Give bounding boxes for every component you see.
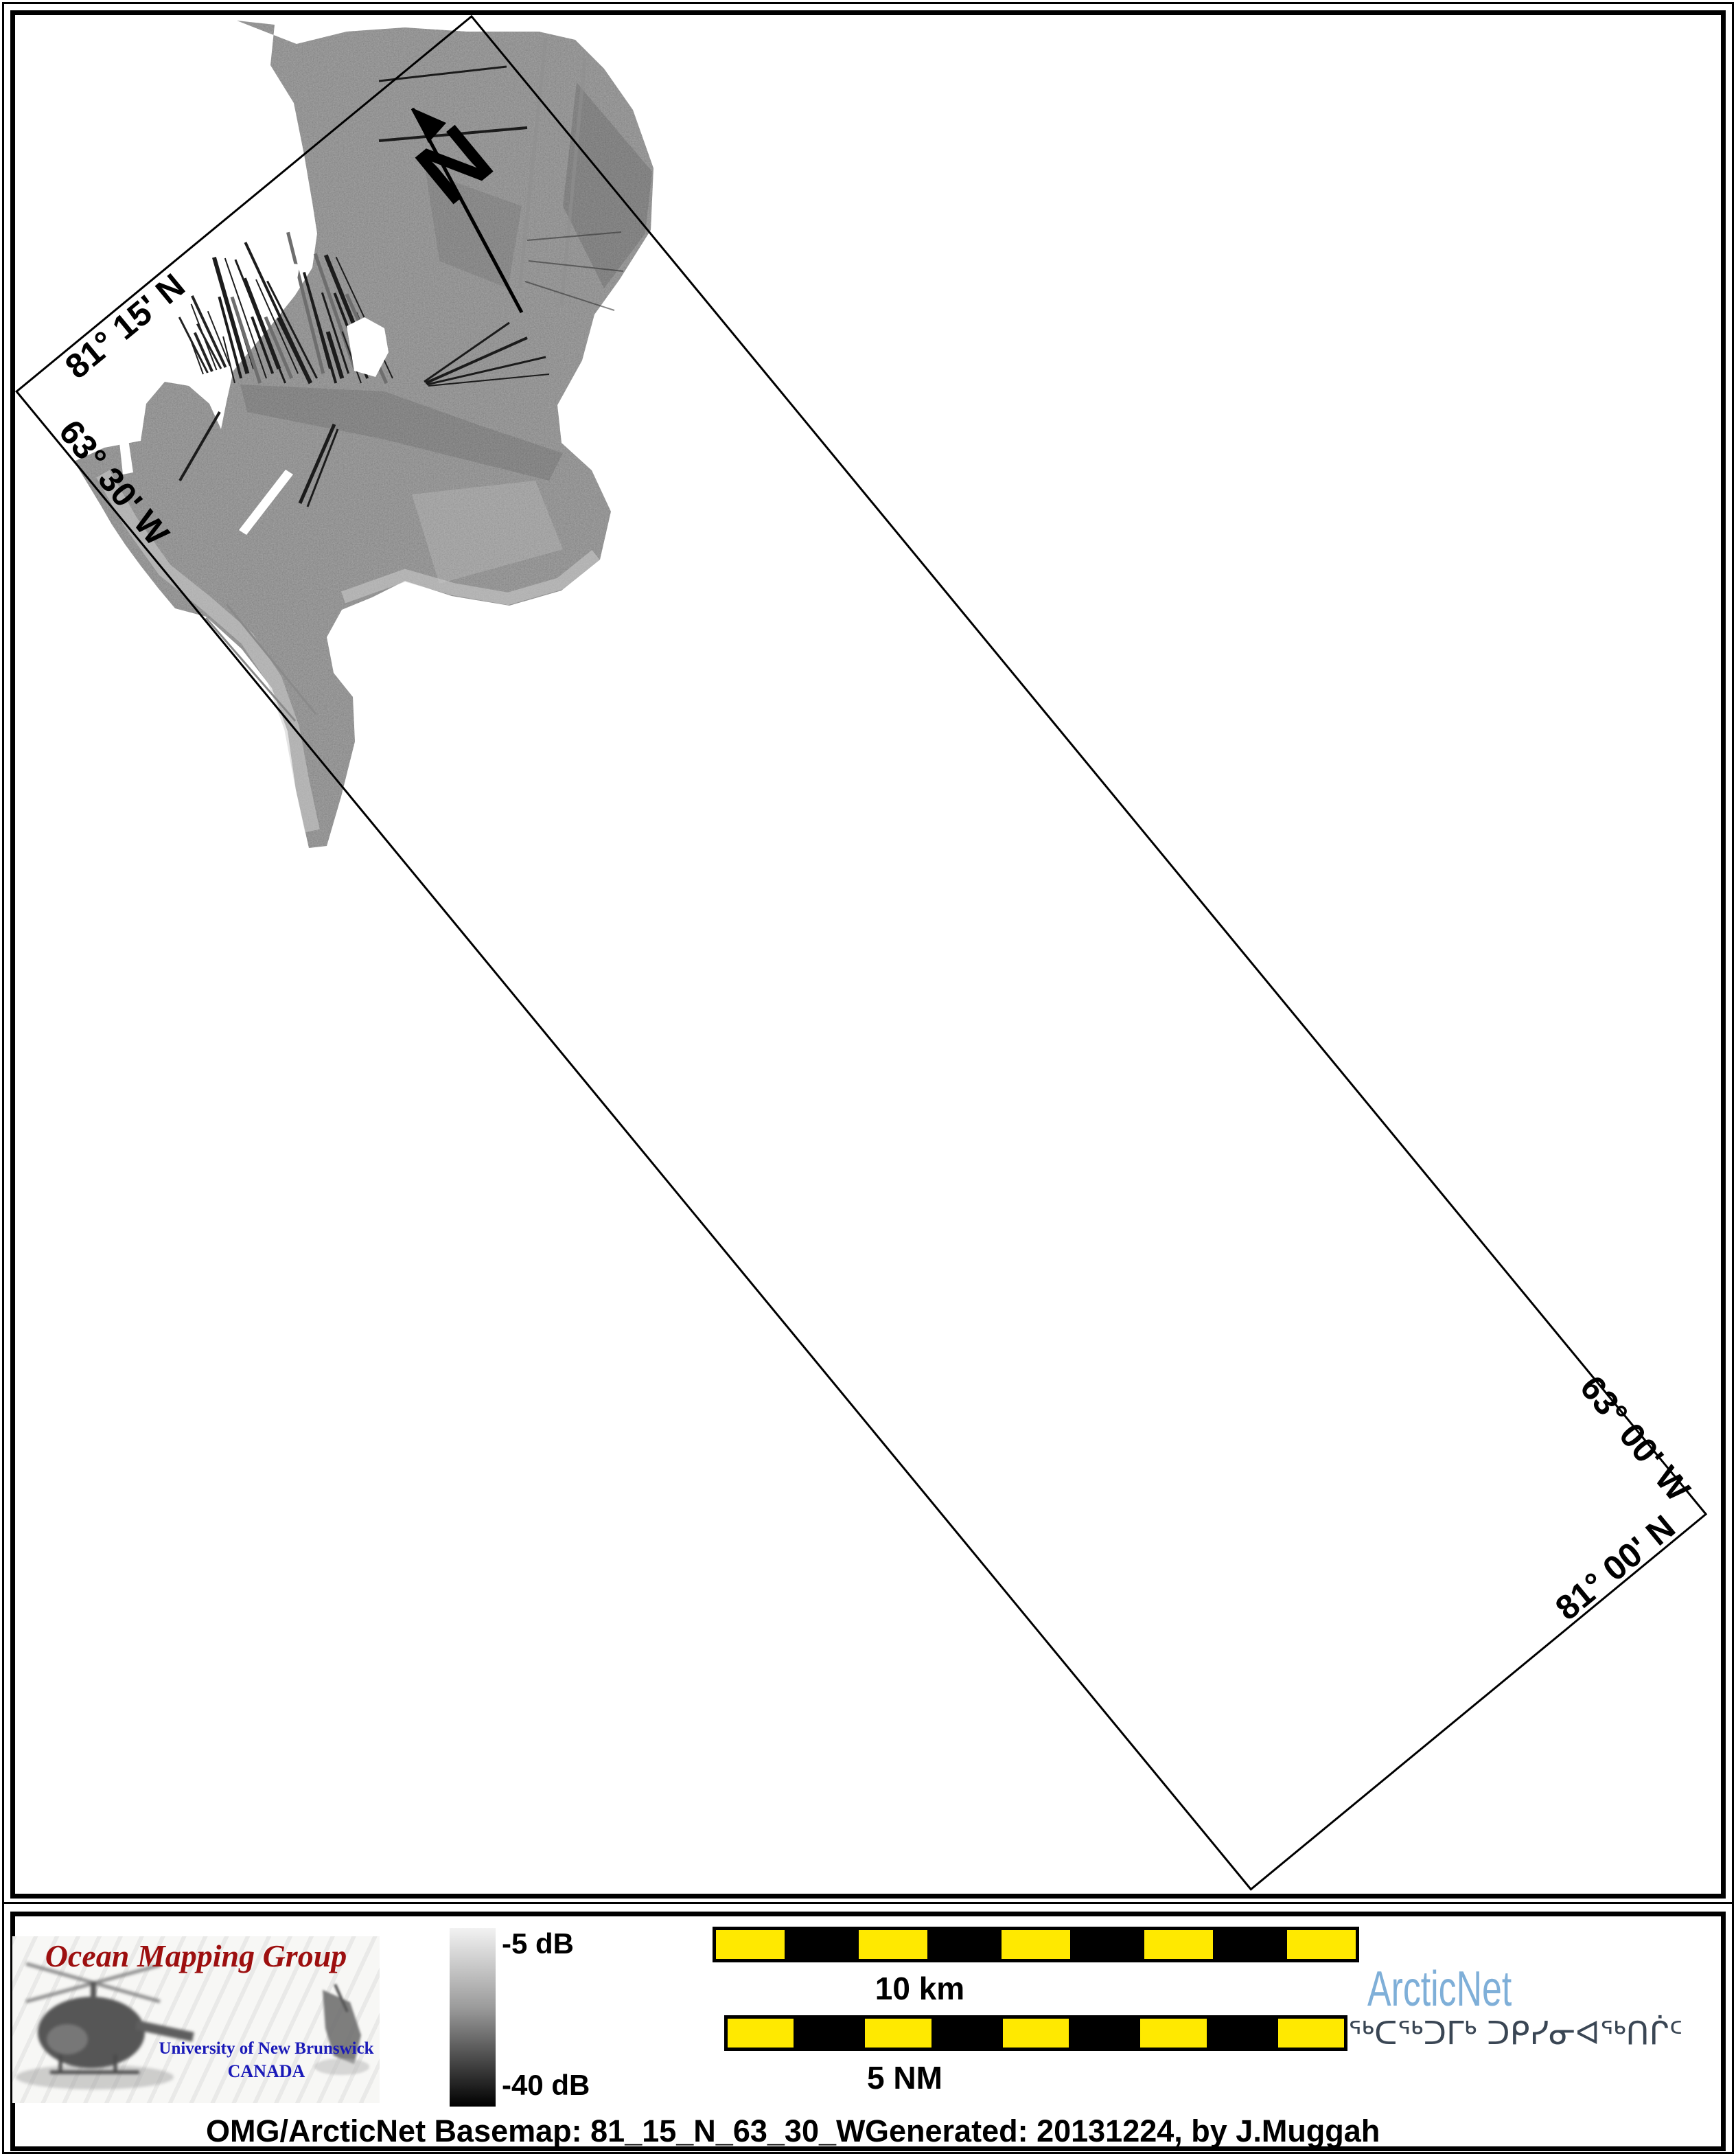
colorbar-max-label: -5 dB <box>502 1927 574 1960</box>
scalebar-nm <box>724 2015 1347 2051</box>
scalebar-segment <box>1000 1929 1072 1960</box>
scalebar-km <box>713 1927 1359 1962</box>
arcticnet-inuktitut-label: ᖅᑕᖅᑐᒥᒃ ᑐᑭᓯᓂᐊᖅᑎᒌᑦ <box>1348 2015 1682 2052</box>
colorbar-min-label: -40 dB <box>502 2069 590 2102</box>
scalebar-nm-label: 5 NM <box>867 2059 942 2096</box>
omg-logo-title: Ocean Mapping Group <box>12 1938 380 1974</box>
scalebar-segment <box>1214 1929 1286 1960</box>
scalebar-segment <box>1286 1929 1357 1960</box>
scalebar-segment <box>795 2017 864 2049</box>
omg-logo-university: University of New Brunswick <box>153 2039 380 2058</box>
basemap-page: { "page": { "width": 2529, "height": 314… <box>0 0 1736 2156</box>
scalebar-segment <box>933 2017 1002 2049</box>
omg-logo: Ocean Mapping Group University of New Br… <box>12 1936 380 2103</box>
scalebar-segment <box>864 2017 932 2049</box>
caption-generated: Generated: 20131224, by J.Muggah <box>865 2113 1380 2149</box>
omg-logo-country: CANADA <box>153 2061 380 2082</box>
scalebar-segment <box>857 1929 929 1960</box>
scalebar-segment <box>1072 1929 1143 1960</box>
scalebar-segment <box>1277 2017 1345 2049</box>
scalebar-segment <box>1208 2017 1277 2049</box>
scalebar-segment <box>1002 2017 1070 2049</box>
scalebar-segment <box>1070 2017 1139 2049</box>
scalebar-segment <box>1139 2017 1207 2049</box>
scalebar-segment <box>929 1929 1000 1960</box>
scalebar-segment <box>786 1929 857 1960</box>
backscatter-colorbar <box>450 1928 496 2107</box>
scalebar-segment <box>1143 1929 1214 1960</box>
scalebar-segment <box>726 2017 795 2049</box>
caption-title: OMG/ArcticNet Basemap: 81_15_N_63_30_W <box>206 2113 865 2149</box>
arcticnet-logo: ArcticNet <box>1367 1961 1512 2017</box>
scalebar-km-label: 10 km <box>875 1970 964 2007</box>
scalebar-segment <box>715 1929 786 1960</box>
